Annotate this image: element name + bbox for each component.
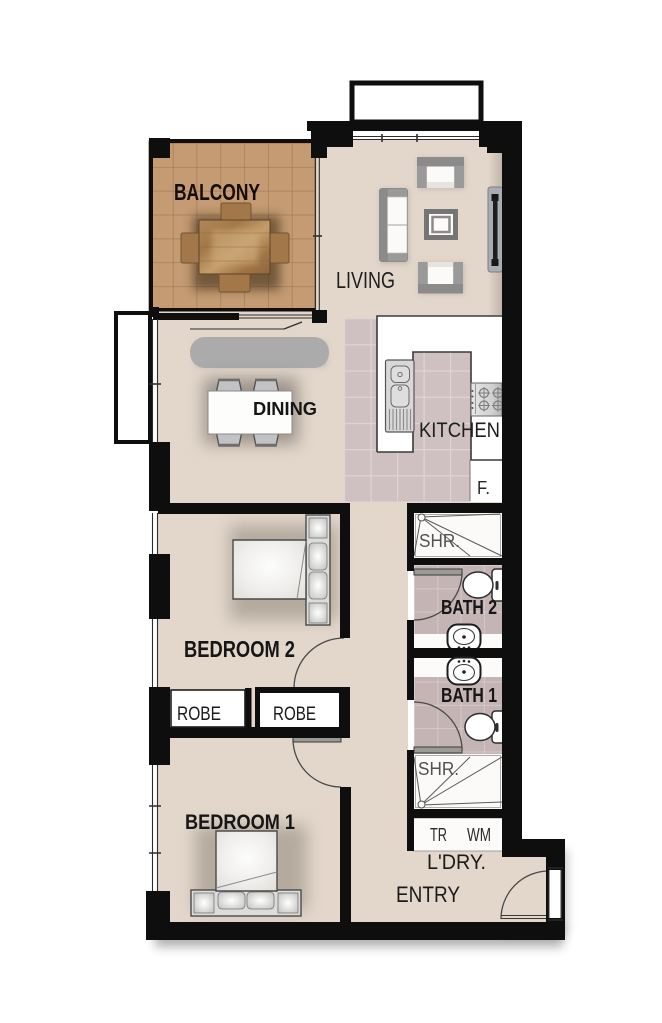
svg-text:WM: WM <box>467 825 491 845</box>
svg-text:KITCHEN: KITCHEN <box>419 419 500 442</box>
svg-text:BEDROOM 1: BEDROOM 1 <box>185 811 295 834</box>
svg-text:DINING: DINING <box>253 399 317 419</box>
svg-text:BATH 1: BATH 1 <box>441 684 497 707</box>
svg-text:ROBE: ROBE <box>177 704 221 725</box>
svg-text:BEDROOM 2: BEDROOM 2 <box>184 636 295 662</box>
svg-text:SHR.: SHR. <box>418 759 459 779</box>
svg-text:SHR.: SHR. <box>419 531 460 551</box>
svg-text:L'DRY.: L'DRY. <box>427 851 486 874</box>
svg-text:ROBE: ROBE <box>273 704 316 725</box>
svg-text:BATH 2: BATH 2 <box>441 596 497 619</box>
svg-text:BALCONY: BALCONY <box>174 179 260 205</box>
svg-text:F.: F. <box>477 478 490 498</box>
svg-text:LIVING: LIVING <box>336 267 395 293</box>
svg-text:ENTRY: ENTRY <box>396 882 460 907</box>
svg-text:TR: TR <box>430 825 447 845</box>
